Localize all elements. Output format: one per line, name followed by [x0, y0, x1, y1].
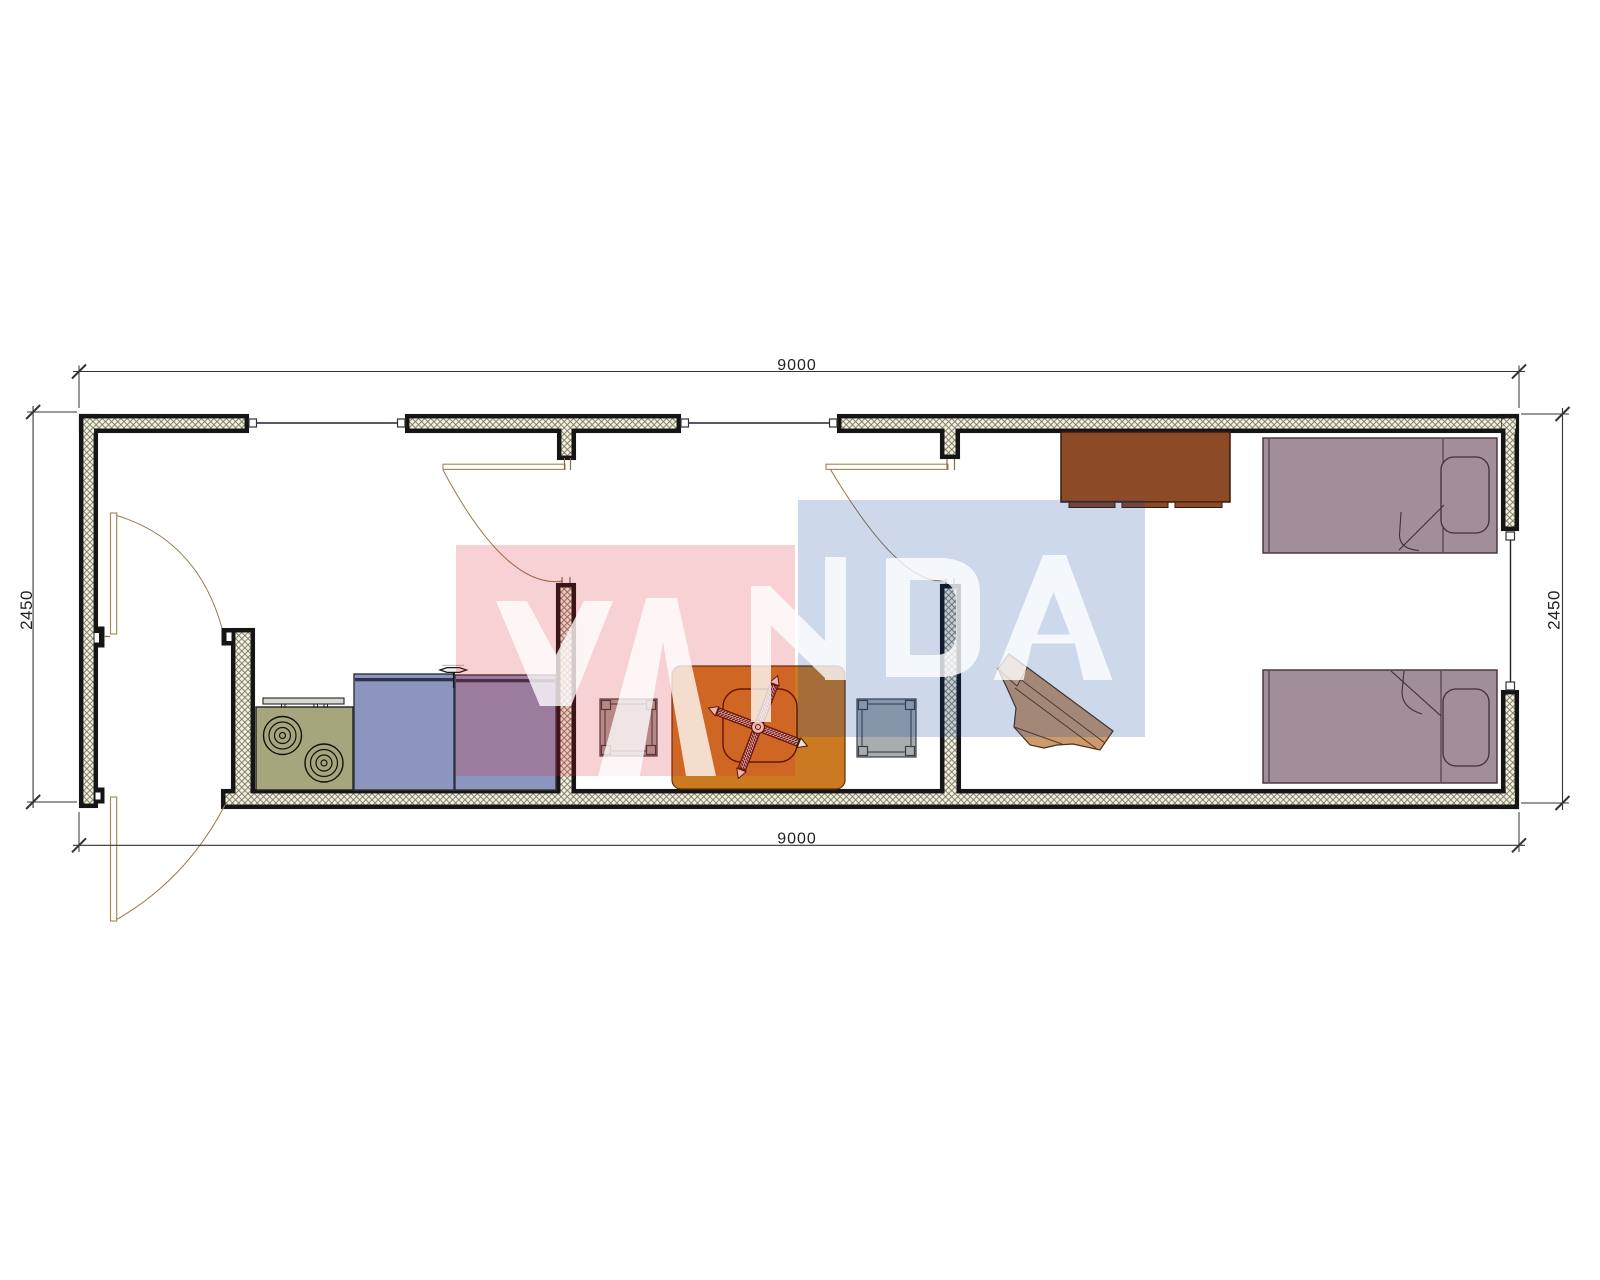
svg-text:9000: 9000 — [777, 831, 817, 848]
svg-text:2450: 2450 — [17, 590, 36, 630]
svg-text:2450: 2450 — [1545, 590, 1564, 630]
svg-text:9000: 9000 — [777, 357, 817, 374]
